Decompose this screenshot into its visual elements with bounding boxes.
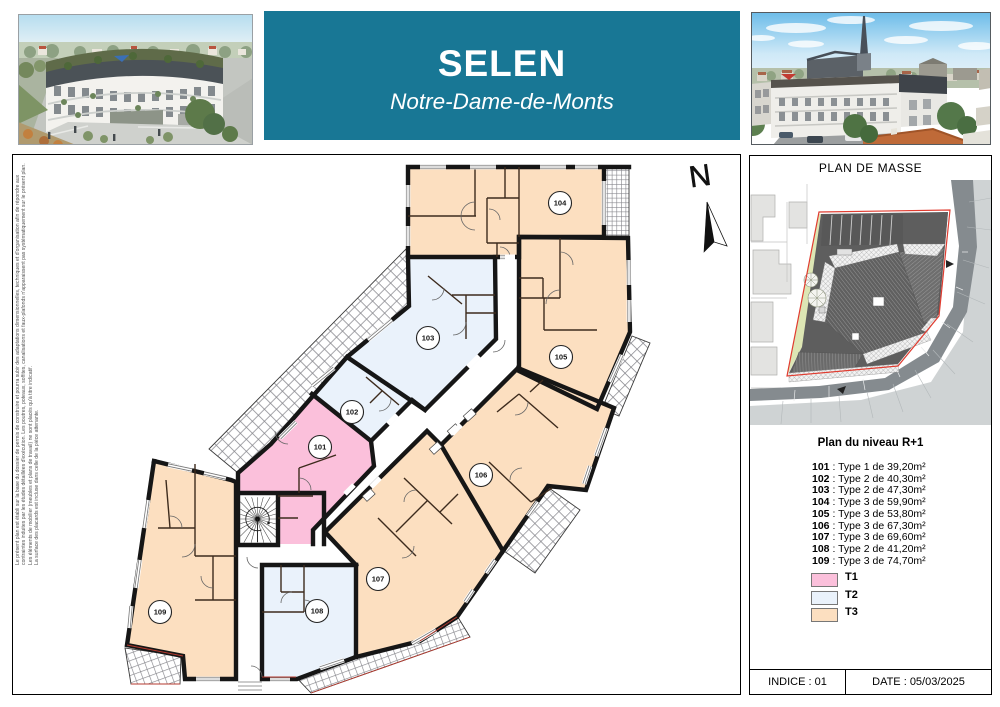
svg-text:105: 105 — [555, 353, 568, 362]
svg-text:102: 102 — [346, 408, 359, 417]
svg-text:104: 104 — [554, 199, 567, 208]
svg-text:101: 101 — [314, 443, 327, 452]
svg-text:109: 109 — [154, 608, 167, 617]
svg-text:103: 103 — [422, 334, 435, 343]
svg-text:107: 107 — [372, 575, 385, 584]
svg-text:108: 108 — [311, 607, 324, 616]
svg-text:106: 106 — [475, 471, 488, 480]
svg-text:N: N — [687, 159, 713, 195]
